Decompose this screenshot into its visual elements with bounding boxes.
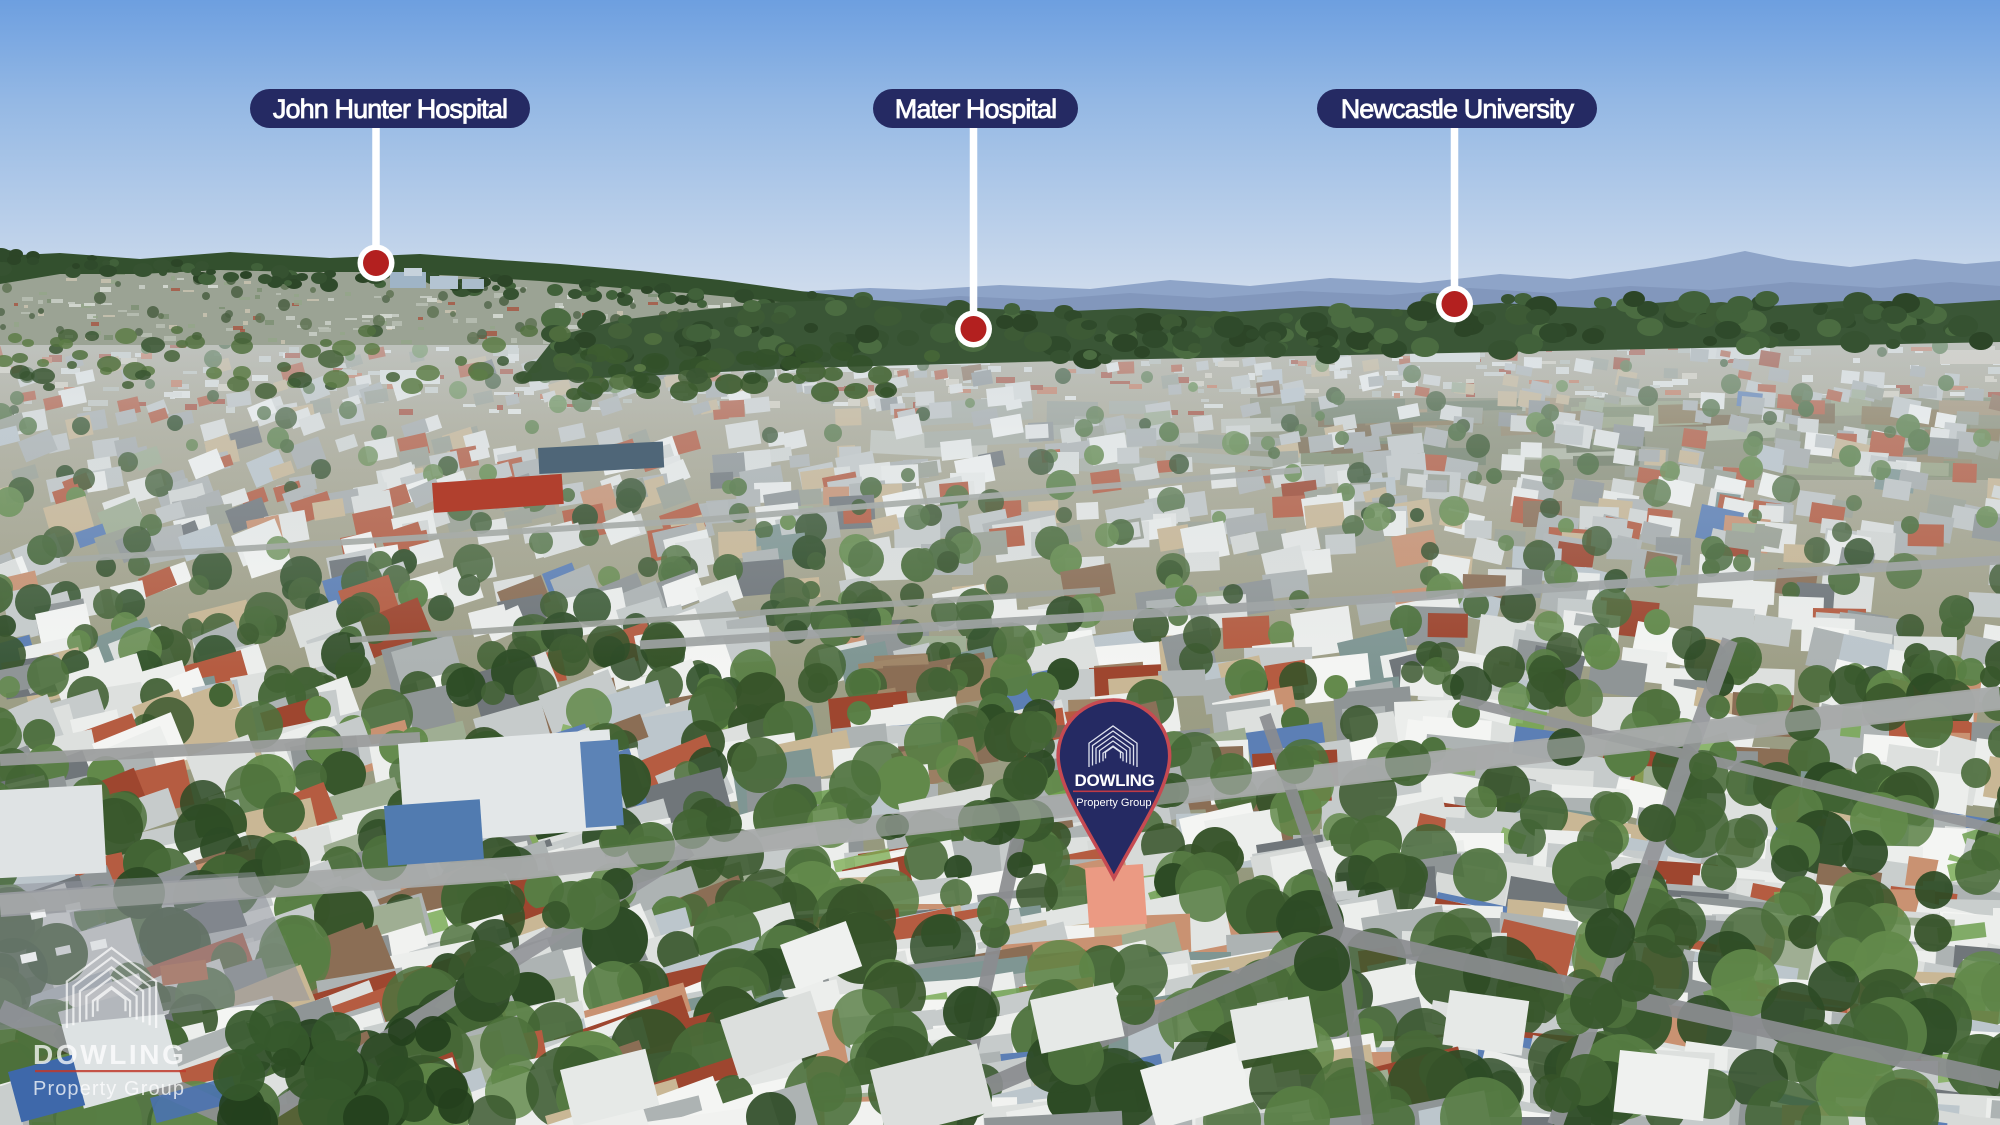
svg-text:DOWLING: DOWLING xyxy=(33,1039,187,1070)
svg-text:John Hunter Hospital: John Hunter Hospital xyxy=(273,94,507,124)
svg-text:Property Group: Property Group xyxy=(1076,797,1151,809)
svg-text:Property Group: Property Group xyxy=(33,1078,185,1100)
svg-text:Mater Hospital: Mater Hospital xyxy=(895,94,1056,124)
svg-text:Newcastle University: Newcastle University xyxy=(1341,94,1575,124)
svg-text:DOWLING: DOWLING xyxy=(1074,771,1154,790)
